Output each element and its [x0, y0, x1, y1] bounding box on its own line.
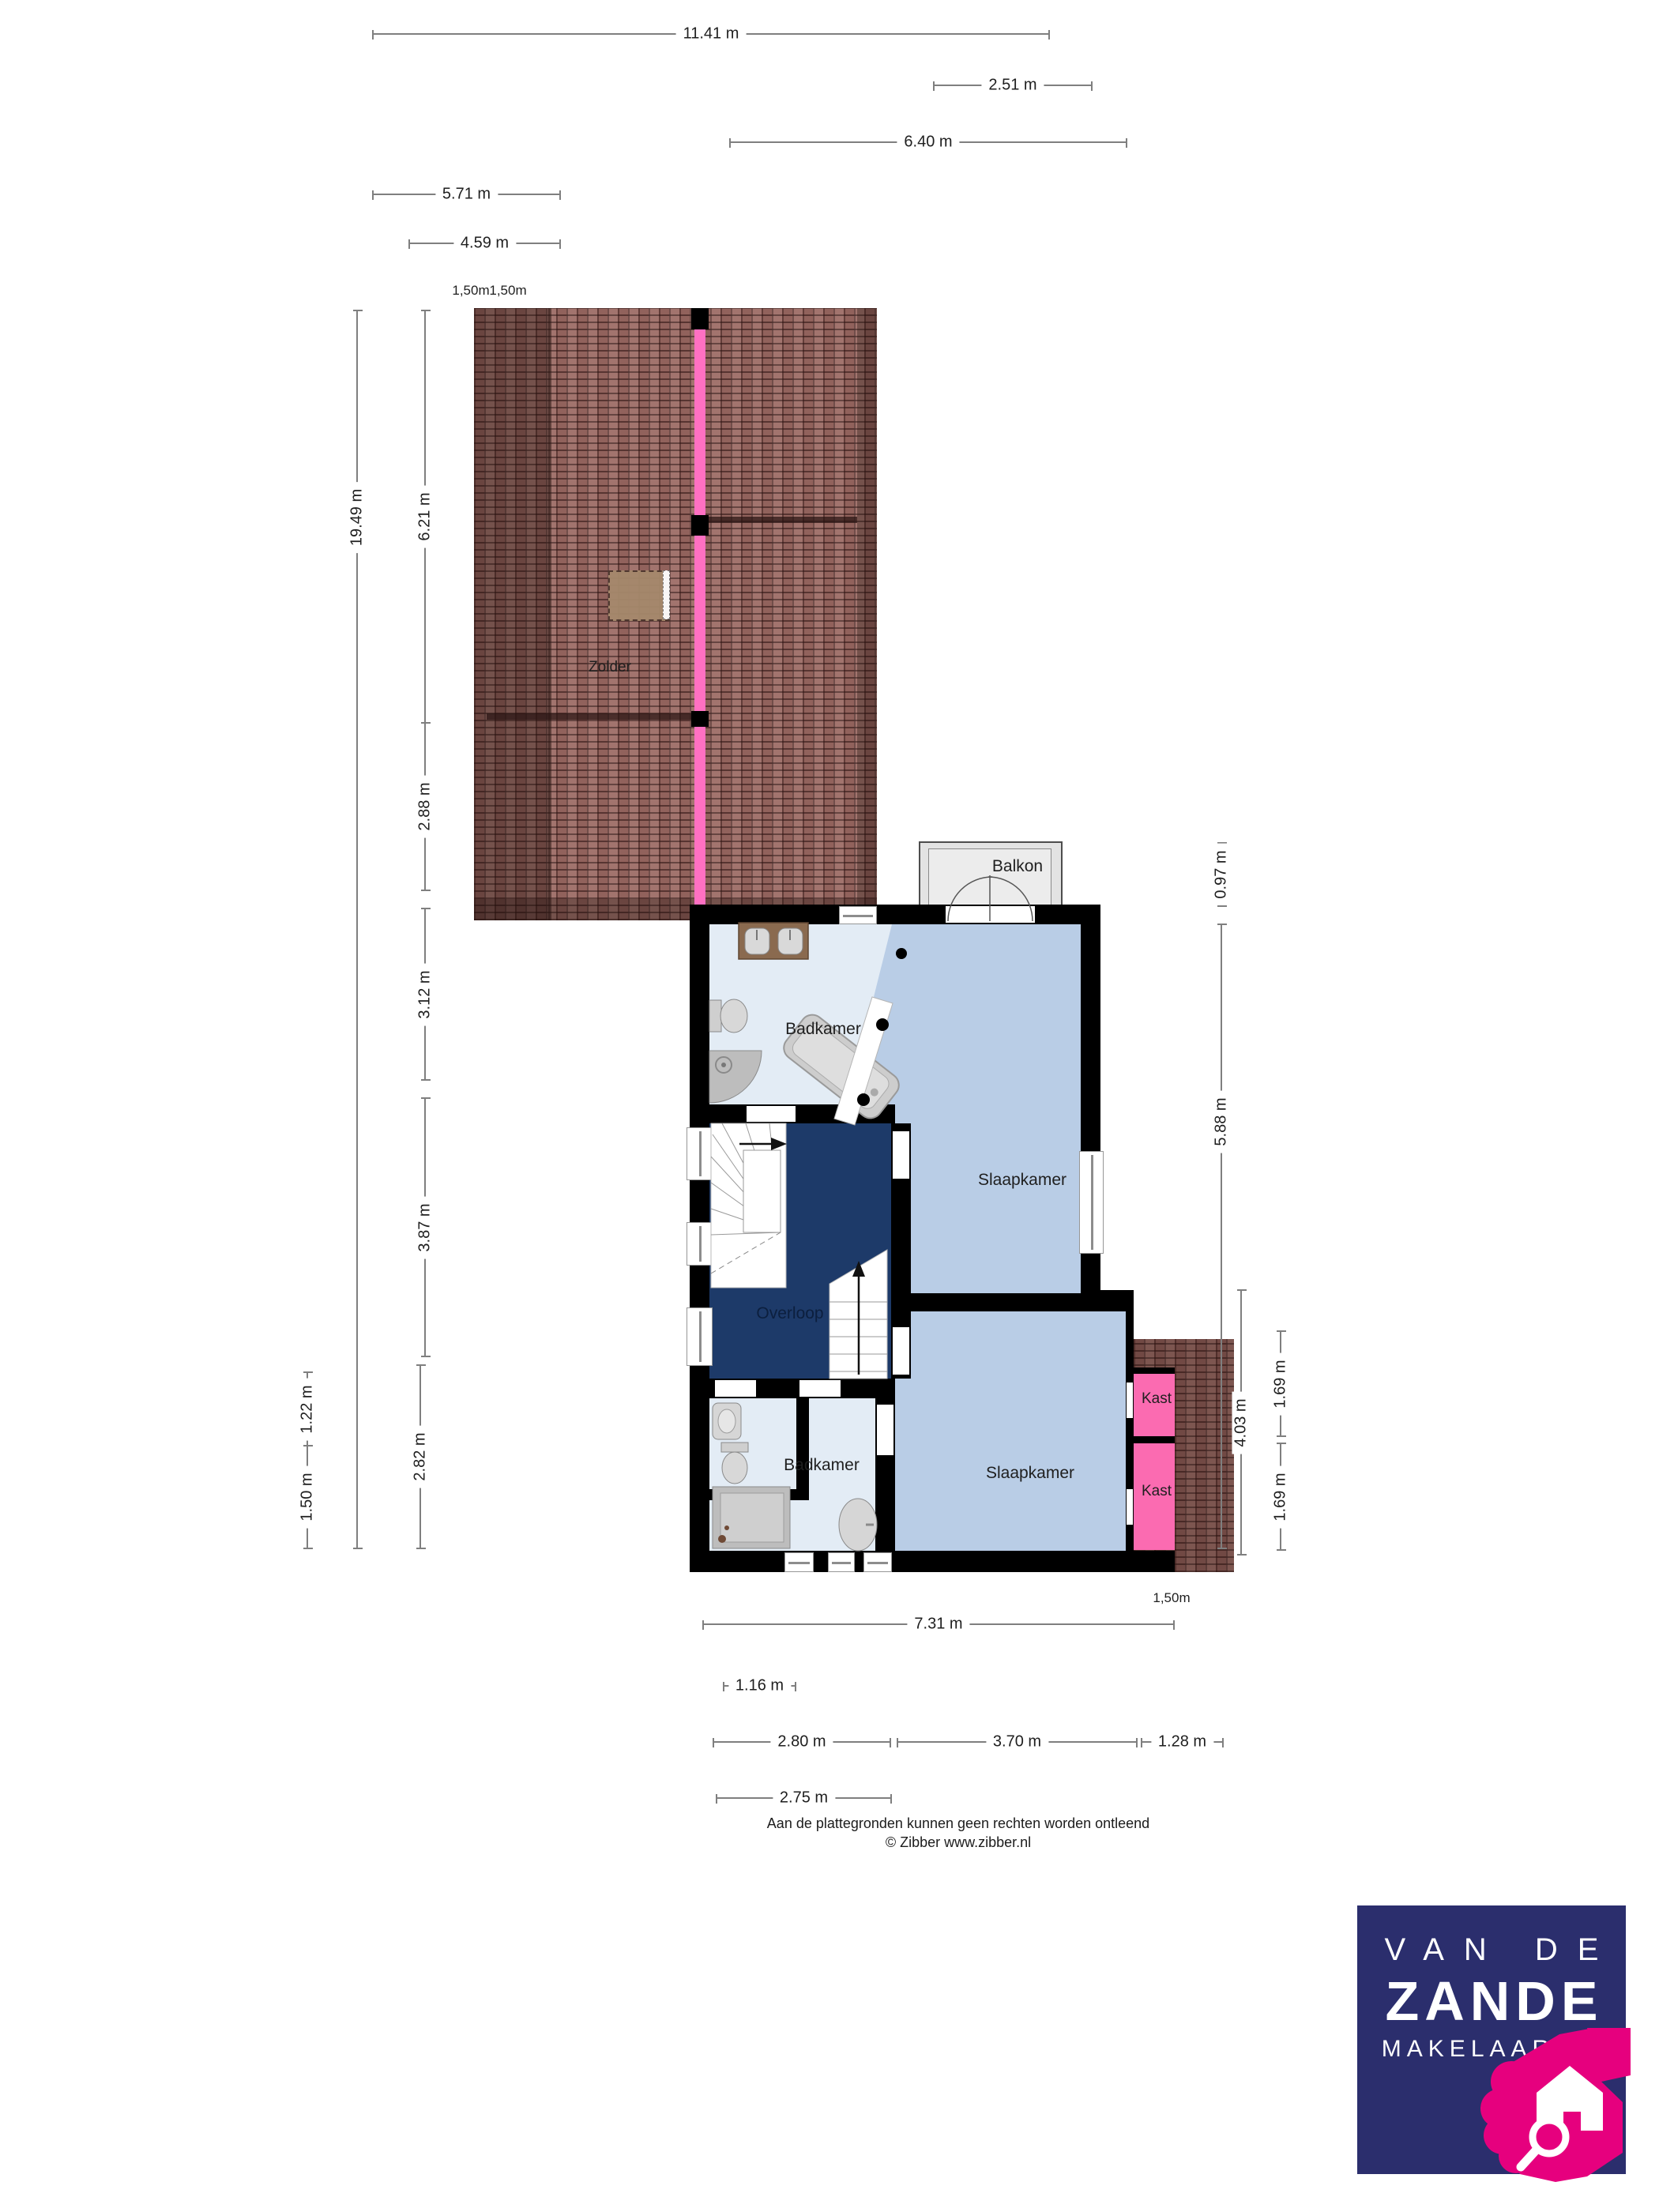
wall-top	[690, 905, 1100, 924]
dim-bottom-shower: 2.75 m	[717, 1797, 891, 1799]
dim-bottom-total: 7.31 m	[703, 1623, 1174, 1625]
footer-copyright: © Zibber www.zibber.nl	[642, 1833, 1274, 1852]
window-bottom-3	[863, 1552, 892, 1572]
dim-right-kast1: 1.69 m	[1280, 1331, 1281, 1436]
wall-kast-top	[1134, 1367, 1175, 1374]
roof-chimney-top	[691, 308, 709, 329]
wall-badkamer-overloop	[709, 1104, 895, 1123]
door-badkamer1-overloop	[747, 1106, 796, 1122]
dim-bottom-wc: 1.16 m	[724, 1685, 796, 1687]
label-corner-height: 1,50m	[1153, 1590, 1190, 1606]
dim-top-balcony: 2.51 m	[934, 85, 1092, 86]
door-badkamer2-slaapkamer2	[877, 1405, 893, 1455]
dim-top-total: 11.41 m	[373, 33, 1049, 35]
room-badkamer-beneden-b	[709, 1500, 895, 1551]
dim-left-overloop: 3.87 m	[424, 1098, 426, 1356]
logo-line1: VAN DE	[1357, 1932, 1626, 1968]
room-label-badkamer-boven: Badkamer	[785, 1020, 861, 1039]
dim-left-wc: 1.22 m	[307, 1372, 308, 1446]
wall-wc-right	[796, 1398, 809, 1492]
room-label-slaapkamer-achter: Slaapkamer	[986, 1464, 1074, 1483]
wall-bump-top	[1081, 1290, 1134, 1311]
roof-zolder	[474, 308, 877, 920]
roof-ridge-line-left	[487, 713, 694, 720]
roof-skylight-edge	[663, 570, 670, 619]
room-wc	[709, 1398, 796, 1489]
roof-chimney-middle	[691, 515, 709, 536]
door-overloop-wc	[715, 1380, 756, 1397]
roof-skylight	[608, 570, 670, 621]
room-label-zolder: Zolder	[589, 659, 631, 676]
window-left-1	[687, 1127, 713, 1180]
dim-top-roof-left-2: 4.59 m	[409, 243, 560, 244]
dim-right-balcony-depth: 0.97 m	[1221, 843, 1222, 906]
balcony	[919, 841, 1063, 912]
label-ridge-height-1: 1,50m	[452, 283, 489, 299]
room-overloop	[709, 1123, 895, 1379]
roof-ridge-pink	[694, 308, 705, 920]
wall-wc-bottom	[709, 1489, 809, 1500]
room-slaapkamer-achter	[895, 1311, 1126, 1551]
dim-left-badkamer2: 2.82 m	[419, 1365, 421, 1548]
footer-disclaimer: Aan de plattegronden kunnen geen rechten…	[642, 1814, 1274, 1833]
dim-right-slaapkamer1: 5.88 m	[1221, 924, 1222, 1548]
dim-top-roof-left-1: 5.71 m	[373, 194, 560, 195]
door-overloop-slaapkamer1	[893, 1131, 909, 1179]
window-top-1	[839, 906, 877, 924]
roof-shade-right	[857, 308, 877, 920]
dim-bottom-slaapkamer: 3.70 m	[897, 1741, 1137, 1743]
room-label-kast-2: Kast	[1142, 1483, 1172, 1500]
window-left-2	[687, 1222, 713, 1266]
dim-bottom-badkamer: 2.80 m	[713, 1741, 890, 1743]
room-label-balkon: Balkon	[992, 857, 1043, 876]
window-bottom-1	[784, 1552, 814, 1572]
house-magnifier-icon	[1461, 2020, 1631, 2182]
room-label-slaapkamer-voor: Slaapkamer	[978, 1171, 1066, 1190]
window-left-3	[687, 1307, 713, 1366]
door-slaapkamer2-kast1	[1127, 1382, 1133, 1418]
room-label-badkamer-beneden: Badkamer	[784, 1456, 860, 1475]
roof-shade-left	[474, 308, 550, 920]
dim-bottom-kast: 1.28 m	[1142, 1741, 1223, 1743]
floorplan-page: Zolder Balkon	[0, 0, 1659, 2212]
window-right-1	[1079, 1151, 1104, 1254]
dim-right-bumpout: 4.03 m	[1240, 1290, 1242, 1555]
room-label-overloop: Overloop	[756, 1304, 823, 1323]
wall-kast-divider	[1134, 1436, 1175, 1443]
dim-top-roof-right: 6.40 m	[730, 141, 1127, 143]
dim-left-shower: 1.50 m	[307, 1446, 308, 1548]
dim-left-badkamer: 3.12 m	[424, 908, 426, 1080]
wall-bottom	[690, 1551, 1175, 1572]
dim-left-roof-upper: 6.21 m	[424, 310, 426, 723]
door-slaapkamer2-kast2	[1127, 1489, 1133, 1525]
label-ridge-height-2: 1,50m	[489, 283, 526, 299]
roof-ridge-line-right	[705, 517, 857, 523]
door-overloop-badkamer2	[799, 1380, 841, 1397]
room-label-kast-1: Kast	[1142, 1390, 1172, 1408]
dim-left-roof-lower: 2.88 m	[424, 723, 426, 890]
dim-right-kast2: 1.69 m	[1280, 1443, 1281, 1550]
window-bottom-2	[828, 1552, 855, 1572]
footer: Aan de plattegronden kunnen geen rechten…	[642, 1814, 1274, 1852]
roof-chimney-lower	[691, 711, 709, 727]
door-balcony-opening	[946, 906, 1035, 923]
dim-left-total: 19.49 m	[356, 310, 358, 1548]
door-overloop-slaapkamer2	[893, 1327, 909, 1375]
roof-edge-line-vertical	[548, 308, 551, 920]
agency-logo: VAN DE ZANDE MAKELAARDIJ	[1357, 1905, 1626, 2174]
wall-between-slaapkamers	[895, 1293, 1081, 1311]
